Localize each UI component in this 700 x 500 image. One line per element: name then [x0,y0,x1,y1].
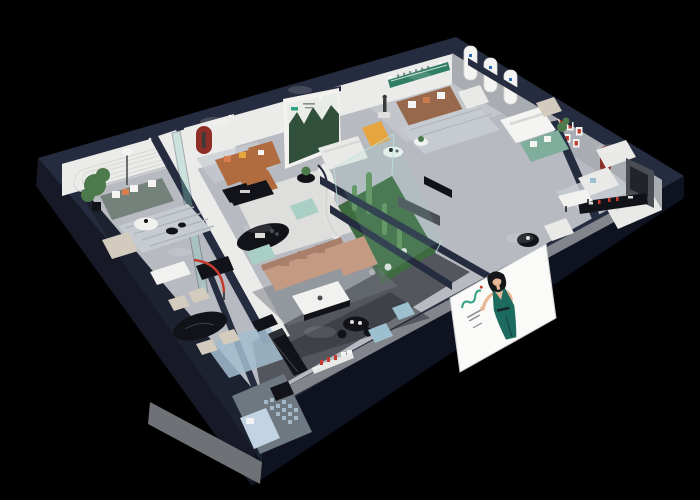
statue [383,99,387,113]
console-tray [240,190,250,193]
table-plant [302,167,311,176]
spot-glow [244,223,272,233]
dish [350,320,354,324]
black-side-table-small [178,223,186,228]
wall-spotlight [319,97,322,100]
isometric-scene [0,0,700,500]
bed-pillow [246,418,254,424]
orange-pillow [122,189,129,195]
black-side-table [166,228,178,235]
showroom-render [0,0,700,500]
dish [358,321,362,325]
spot-glow [408,72,432,80]
plant-pot [92,202,101,211]
spot-glow [304,326,336,338]
table-vase-small [275,232,279,236]
floor-lamp-glow [122,148,132,156]
wall-spotlight [439,62,442,65]
poster-brand-mark [291,107,298,111]
niche-figurine [202,136,206,148]
table-decor [318,296,323,301]
plant-foliage [96,168,110,182]
peach-pillow [423,97,430,103]
table-paper [255,233,265,238]
plant-foliage [563,118,570,125]
pillow [258,150,264,155]
pillow [224,156,231,162]
plant-foliage [81,188,95,202]
figurine-head [202,132,206,136]
spot-glow [288,86,312,94]
wall-spotlight [149,138,152,141]
wall-spotlight [389,76,392,79]
statue-pedestal [378,112,390,118]
spot-glow [200,117,230,127]
table-plant [418,136,424,142]
black-chair [338,330,347,339]
wall-spotlight [229,115,232,118]
blue-pillow [590,178,596,183]
spot-glow [506,233,534,243]
pillow [239,152,246,158]
table-vase [144,219,148,223]
spot-glow [596,144,620,152]
spot-glow [168,248,192,256]
statue-head [383,95,387,99]
